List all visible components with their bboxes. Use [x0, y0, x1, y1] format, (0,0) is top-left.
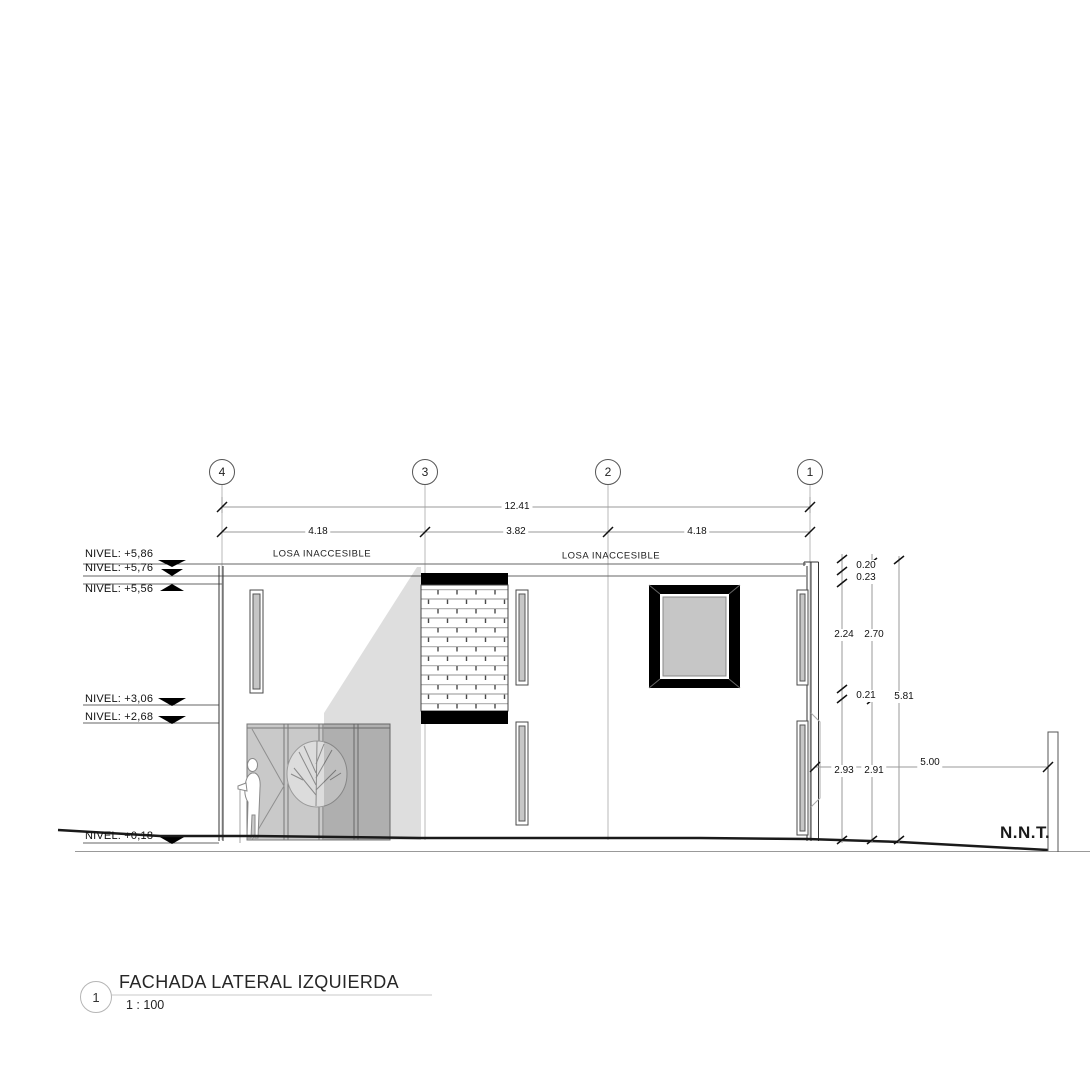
- grid-bubble-4-label: 4: [219, 465, 226, 479]
- sheet-title: FACHADA LATERAL IZQUIERDA: [119, 972, 399, 993]
- slot-window-mid-lower: [516, 722, 528, 825]
- dim-bay-3: 4.18: [684, 526, 709, 538]
- grid-bubble-2: 2: [595, 459, 621, 485]
- grid-bubble-2-label: 2: [605, 465, 612, 479]
- grid-bubble-3: 3: [412, 459, 438, 485]
- dim-upper-wall: 2.24: [831, 629, 856, 641]
- note-losa-left: LOSA INACCESIBLE: [273, 549, 371, 560]
- grid-bubble-1-label: 1: [807, 465, 814, 479]
- slot-window-mid-upper: [516, 590, 528, 685]
- level-label-586: NIVEL: +5,86: [85, 548, 153, 560]
- dimension-lines-right: [810, 554, 1053, 844]
- slot-window-right-lower: [797, 721, 808, 835]
- level-label-306: NIVEL: +3,06: [85, 693, 153, 705]
- level-label-268: NIVEL: +2,68: [85, 711, 153, 723]
- slot-window-left: [250, 590, 263, 693]
- dim-parapet-2: 0.23: [853, 572, 878, 584]
- dim-upper-opening: 2.70: [861, 629, 886, 641]
- shadow-overlay: [324, 567, 421, 840]
- grid-bubble-3-label: 3: [422, 465, 429, 479]
- dim-lower-wall: 2.93: [831, 765, 856, 777]
- level-label-556: NIVEL: +5,56: [85, 583, 153, 595]
- dim-parapet-1: 0.20: [853, 560, 878, 572]
- detail-number: 1: [92, 990, 99, 1005]
- dim-overall-width: 12.41: [501, 501, 532, 513]
- dim-side-setback: 5.00: [917, 757, 942, 769]
- grid-bubble-1: 1: [797, 459, 823, 485]
- level-marker-icons: [158, 560, 186, 844]
- detail-number-bubble: 1: [80, 981, 112, 1013]
- level-label-576: NIVEL: +5,76: [85, 562, 153, 574]
- note-losa-right: LOSA INACCESIBLE: [562, 551, 660, 562]
- square-window: [649, 585, 740, 688]
- dim-total-height: 5.81: [891, 691, 916, 703]
- level-label-018: NIVEL: +0,18: [85, 830, 153, 842]
- sheet-scale: 1 : 100: [126, 998, 164, 1012]
- grid-bubble-4: 4: [209, 459, 235, 485]
- elevation-linework: [0, 0, 1092, 1092]
- brick-screen: [421, 573, 508, 724]
- dim-bay-1: 4.18: [305, 526, 330, 538]
- drawing-canvas: 4 3 2 1 12.41 4.18 3.82 4.18 0.20 0.23 2…: [0, 0, 1092, 1092]
- dim-lower-opening: 2.91: [861, 765, 886, 777]
- dim-sill: 0.21: [853, 690, 878, 702]
- dim-bay-2: 3.82: [503, 526, 528, 538]
- terrain-label: N.N.T.: [1000, 823, 1050, 843]
- slot-window-right-upper: [797, 590, 808, 685]
